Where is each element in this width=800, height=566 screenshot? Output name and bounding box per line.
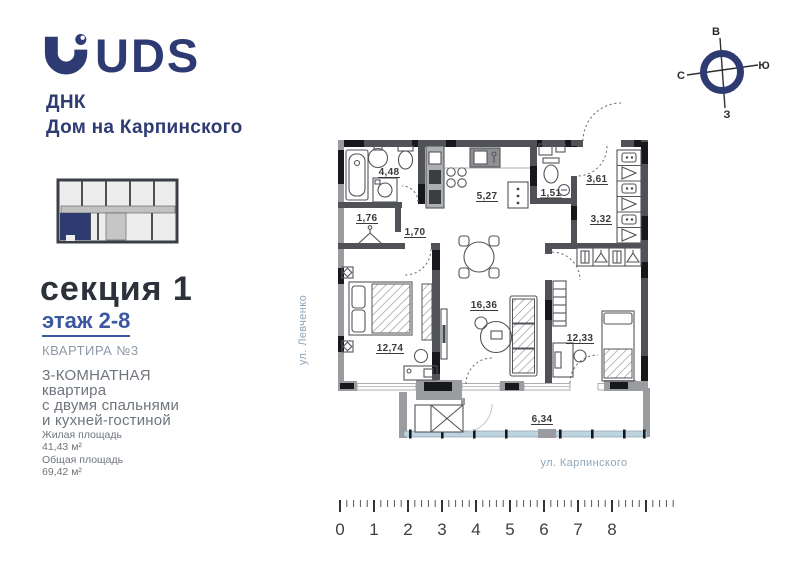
wc-door-arc: [577, 146, 607, 176]
room-area-wc: 1,51: [541, 188, 562, 199]
hall-closet-row: [577, 248, 641, 266]
ruler-label: 1: [369, 520, 378, 539]
ac-unit: [415, 405, 463, 432]
work-table: [481, 322, 512, 353]
street-label-left: ул. Левченко: [297, 295, 309, 365]
hall-wardrobe-column: [617, 150, 641, 243]
stove: [447, 168, 455, 176]
bathroom-door-arc: [402, 186, 418, 202]
room-area-kitchen: 5,27: [477, 191, 498, 202]
floor-plan-drawing: 4,48 5,27 1,51 3,61 3,32 1,76 1,70 16,36…: [0, 0, 800, 566]
wardrobe-hanger-icon: [358, 226, 382, 244]
bedroom1-furniture: [342, 267, 437, 380]
bath-sink: [369, 149, 388, 168]
room-area-bedroom2: 12,33: [567, 333, 594, 344]
ruler-label: 6: [539, 520, 548, 539]
compass-north: С: [677, 70, 685, 82]
scale-ruler-labels: 0 1 2 3 4 5 6 7 8: [335, 520, 616, 539]
scale-ruler-ticks: [339, 500, 674, 512]
room-area-bedroom1: 12,74: [377, 343, 404, 354]
bedroom2-furniture: [553, 281, 634, 381]
room-area-hall-entry: 3,61: [587, 174, 608, 185]
living-balcony-door-arc: [466, 358, 492, 384]
washing-machine: [373, 178, 397, 202]
bedroom2-balcony-door-arc: [570, 355, 598, 383]
shelving: [553, 281, 566, 326]
room-area-hall: 3,32: [591, 214, 612, 225]
compass-south: Ю: [758, 60, 769, 72]
compass-east: В: [712, 26, 720, 38]
room-area-wardrobe: 1,76: [357, 213, 378, 224]
street-label-bottom: ул. Карпинского: [540, 457, 627, 469]
ruler-label: 4: [471, 520, 480, 539]
wc-toilet: [544, 165, 558, 183]
ruler-label: 3: [437, 520, 446, 539]
room-area-corridor: 1,70: [405, 227, 426, 238]
ruler-label: 2: [403, 520, 412, 539]
bedroom1-door-arc: [405, 249, 431, 275]
bedroom1-wardrobe: [422, 284, 432, 340]
ruler-label: 8: [607, 520, 616, 539]
desk: [553, 343, 573, 377]
exterior-windows: [338, 380, 648, 400]
room-area-balcony: 6,34: [532, 414, 553, 425]
room-area-living: 16,36: [471, 300, 498, 311]
balcony-partition-door-arc: [464, 404, 492, 432]
flyer-page: UDS ДНК Дом на Карпинского секция 1 этаж…: [0, 0, 800, 566]
ruler-label: 7: [573, 520, 582, 539]
dining-table: [464, 242, 494, 272]
compass: В Ю С З: [677, 26, 770, 121]
ruler-label: 0: [335, 520, 344, 539]
bedroom2-door-arc: [552, 252, 580, 280]
entrance-door-arc: [583, 103, 621, 141]
room-area-bathroom: 4,48: [379, 167, 400, 178]
ruler-label: 5: [505, 520, 514, 539]
compass-west: З: [724, 109, 731, 121]
